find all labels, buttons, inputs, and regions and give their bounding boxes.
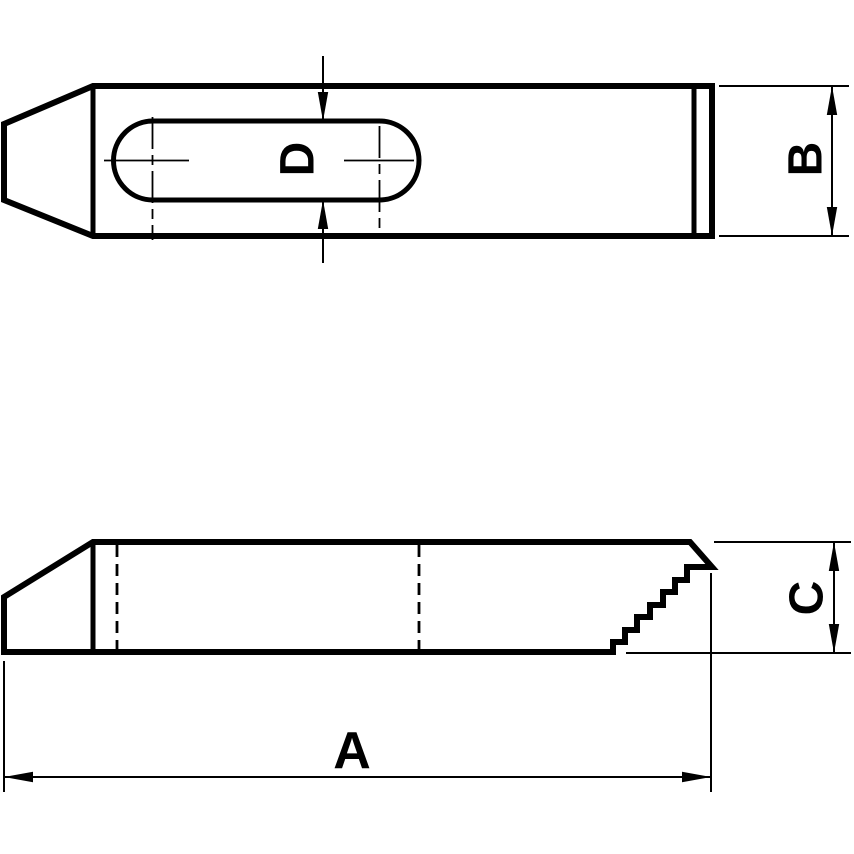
dim-label-c: C <box>781 581 834 616</box>
dim-c-arrow-up-icon <box>829 542 839 571</box>
dim-a-arrow-right-icon <box>682 772 711 782</box>
technical-drawing: D B C <box>0 0 854 854</box>
side-view-outline <box>4 542 712 652</box>
dim-c-arrow-down-icon <box>829 624 839 653</box>
dim-label-b: B <box>780 142 833 177</box>
dim-label-d: D <box>272 142 325 177</box>
dim-label-a: A <box>333 722 371 780</box>
dimension-b: B <box>719 86 849 236</box>
clamp-drawing-canvas: D B C <box>0 0 854 854</box>
dim-a-arrow-left-icon <box>4 772 33 782</box>
top-view <box>4 86 712 240</box>
dim-b-arrow-down-icon <box>827 207 837 236</box>
dim-b-arrow-up-icon <box>827 86 837 115</box>
side-view <box>4 542 712 652</box>
